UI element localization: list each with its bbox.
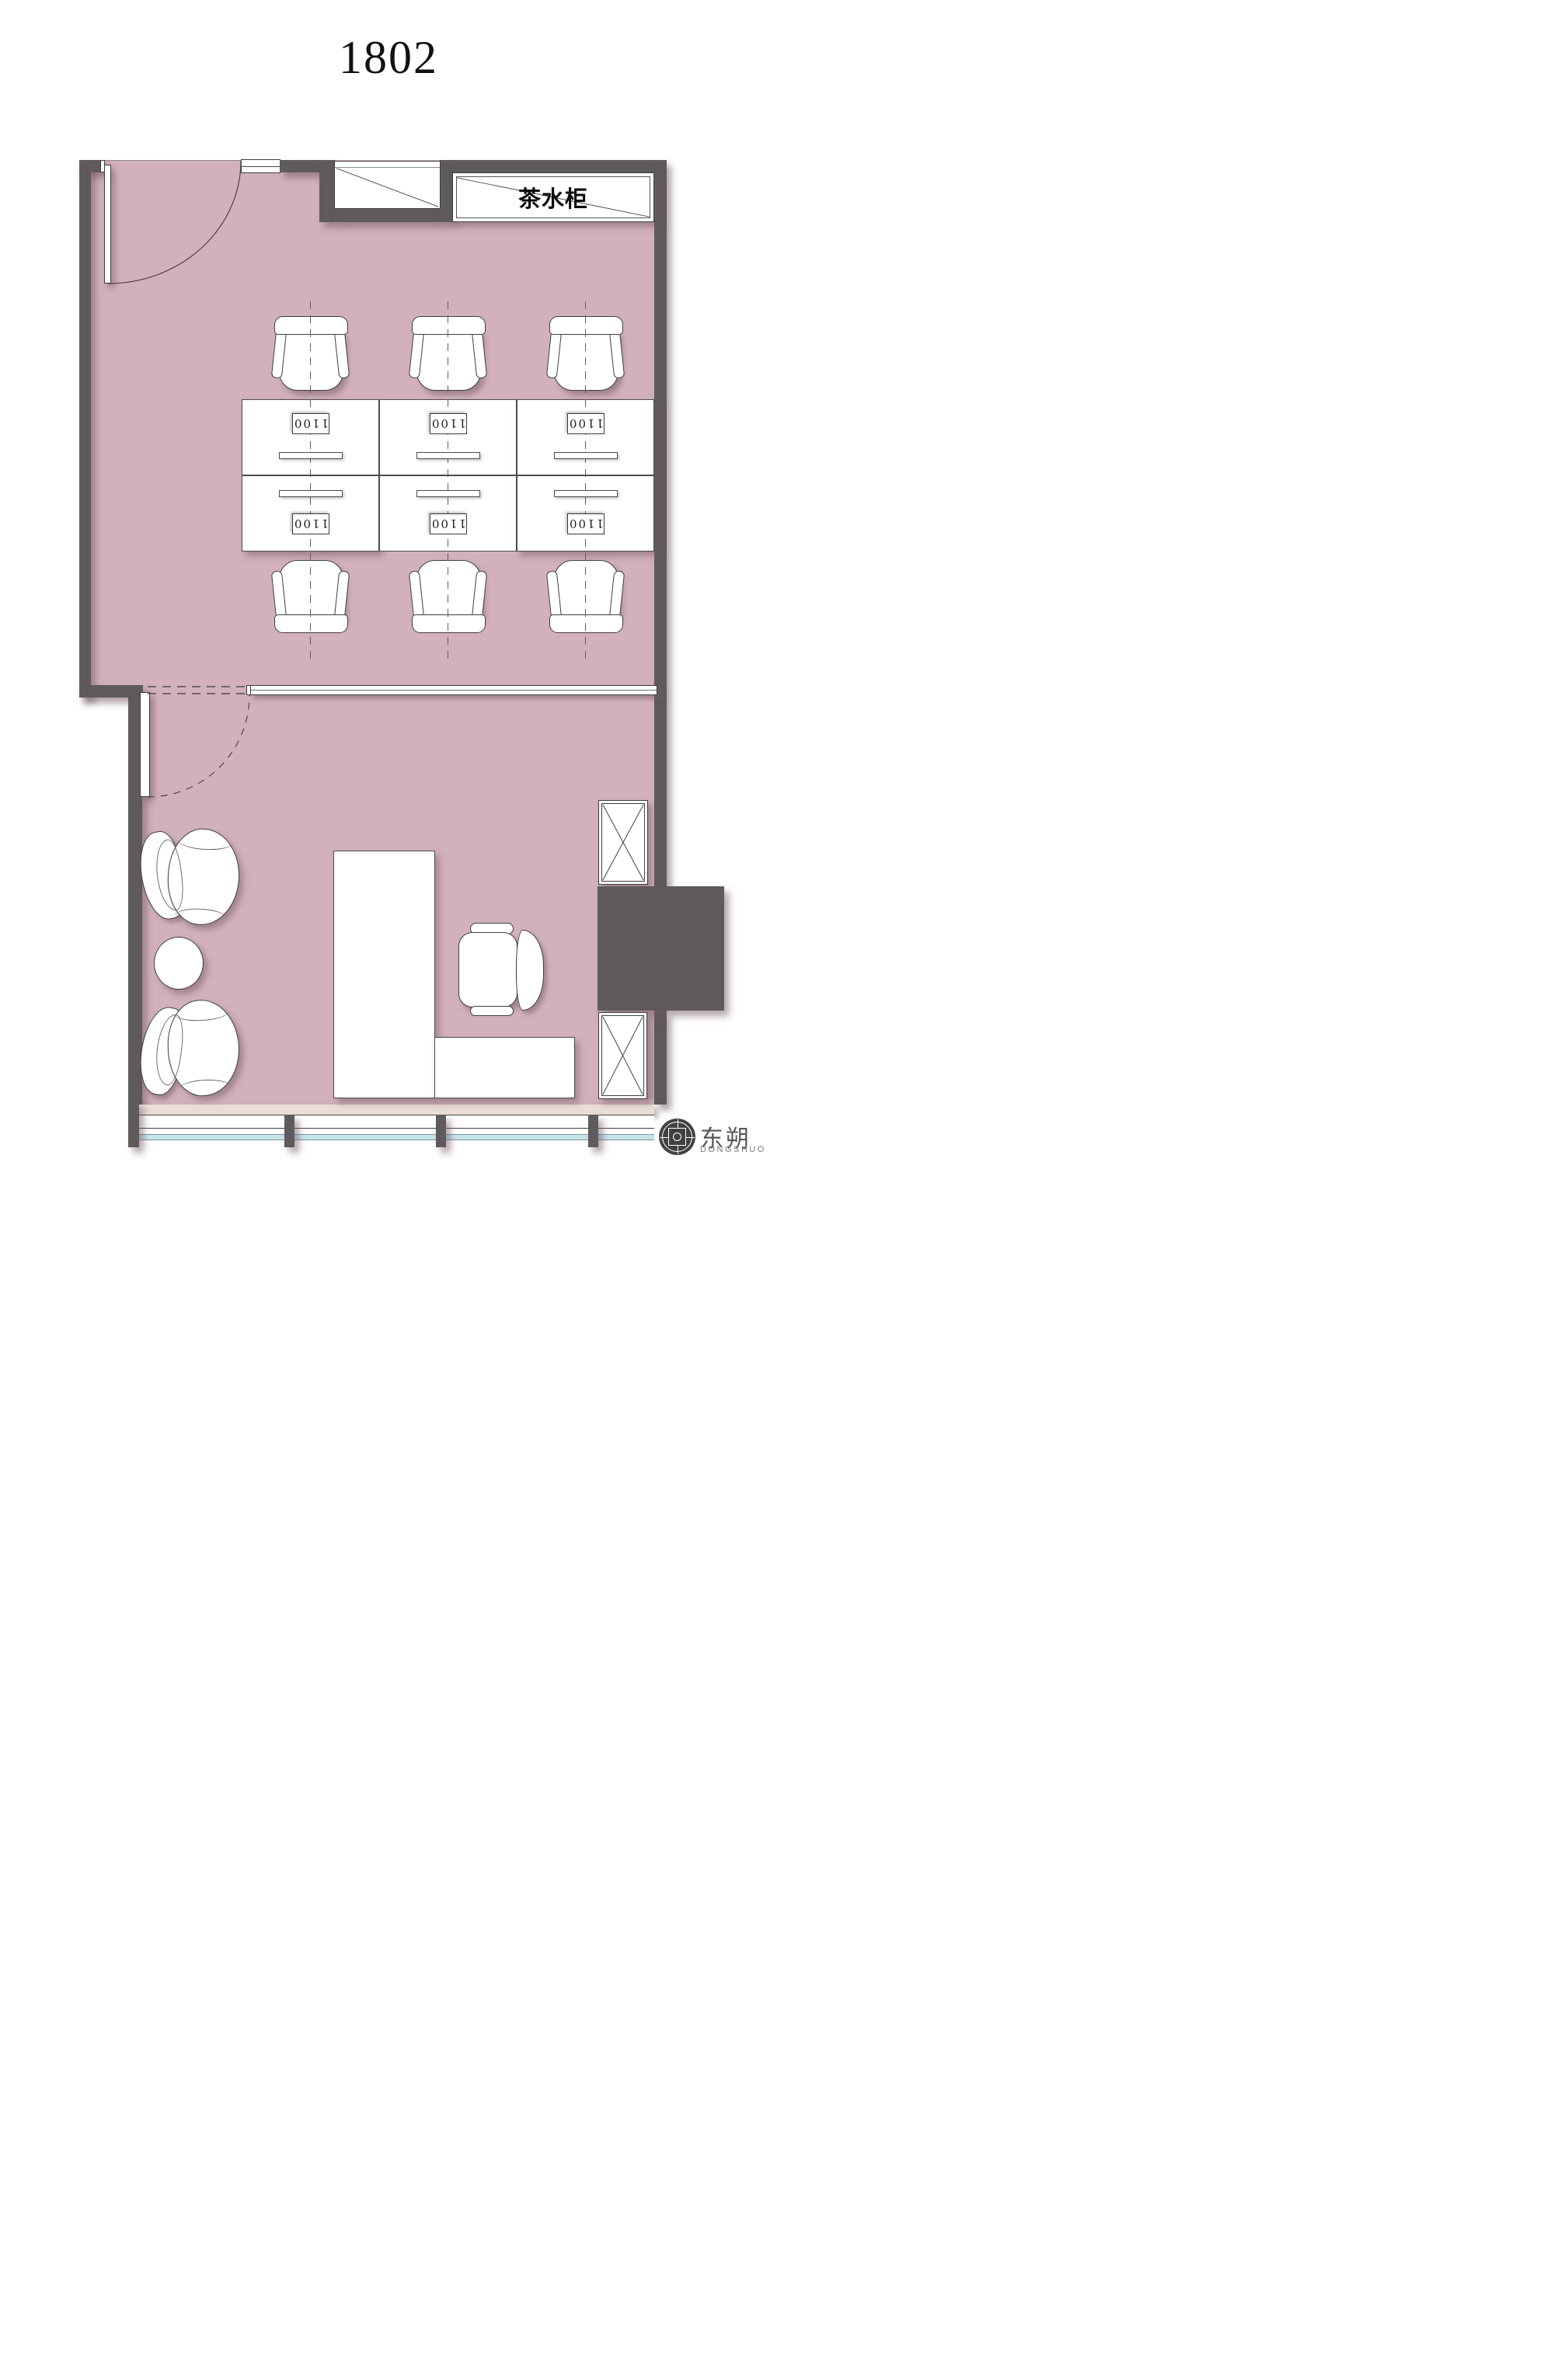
wall-below-niche — [334, 208, 441, 222]
desk-drawer — [416, 490, 480, 497]
coffee-table — [154, 937, 204, 990]
chair-seat — [416, 329, 481, 391]
executive-chair-backrest — [516, 930, 544, 1011]
desk-cell — [517, 399, 654, 475]
unit-title: 1802 — [0, 31, 777, 85]
partition-door-leaf — [140, 692, 150, 797]
wall-right-upper — [654, 160, 667, 886]
desk-drawer — [554, 452, 618, 459]
lounge-chair — [139, 998, 240, 1101]
task-chair — [411, 316, 485, 393]
top-wall-window — [241, 159, 280, 173]
desk-size-label: 1100 — [292, 513, 329, 534]
window-mullion — [588, 1115, 598, 1147]
window-glazing — [132, 1134, 654, 1140]
service-block — [598, 886, 724, 1011]
desk-cell — [242, 399, 379, 475]
executive-chair-footbar — [470, 1006, 514, 1016]
executive-chair — [458, 923, 545, 1018]
wall-left-upper — [79, 160, 91, 698]
curtain-wall-window — [132, 1115, 654, 1143]
tea-water-cabinet: 茶水柜 — [452, 172, 654, 222]
executive-desk-main — [333, 851, 435, 1098]
chair-backrest — [412, 614, 486, 633]
desk-size-label: 1100 — [567, 513, 605, 534]
desk-size-label: 1100 — [430, 413, 467, 434]
task-chair — [274, 556, 347, 633]
partition-glass-line — [251, 690, 657, 691]
task-chair — [549, 316, 622, 393]
cabinet-diagonal-line — [336, 169, 438, 207]
entry-door-leaf — [104, 165, 111, 284]
chair-backrest — [549, 316, 623, 335]
desk-drawer — [279, 452, 343, 459]
shaft-box-crossed — [598, 800, 648, 885]
task-chair — [411, 556, 485, 633]
logo-mark-icon — [659, 1119, 695, 1155]
wall-top-right — [452, 160, 656, 172]
wall-left-jog — [79, 685, 143, 698]
desk-drawer — [416, 452, 480, 459]
chair-backrest — [274, 614, 348, 633]
window-sill-line — [242, 166, 280, 167]
executive-desk-return — [434, 1037, 575, 1098]
storage-cabinet — [334, 161, 441, 209]
logo-subtitle: DONGSHUO — [700, 1145, 766, 1154]
window-mullion — [128, 1101, 139, 1147]
glass-partition — [250, 685, 657, 695]
window-frame-line — [132, 1128, 654, 1129]
tea-cabinet-label: 茶水柜 — [518, 181, 588, 214]
chair-backrest — [549, 614, 623, 633]
executive-chair-seat — [458, 932, 517, 1007]
desk-cell — [379, 399, 517, 475]
wall-right-lower — [654, 1011, 667, 1105]
desk-size-label: 1100 — [567, 413, 605, 434]
chair-backrest — [412, 316, 486, 335]
floor-ledge — [132, 1105, 654, 1115]
wall-accent-strip — [647, 1012, 654, 1099]
desk-size-label: 1100 — [292, 413, 329, 434]
entry-threshold-line — [104, 160, 241, 161]
chair-backrest — [274, 316, 348, 335]
desk-drawer — [554, 490, 618, 497]
wall-stub-down — [319, 160, 335, 222]
chair-seat — [279, 329, 343, 391]
task-chair — [549, 556, 622, 633]
window-mullion — [284, 1115, 294, 1147]
partition-door-jamb — [246, 685, 251, 695]
task-chair — [274, 316, 347, 393]
window-mullion — [436, 1115, 446, 1147]
chair-seat — [554, 329, 618, 391]
logo-dot — [673, 1133, 681, 1141]
shaft-box-crossed — [598, 1012, 647, 1099]
desk-drawer — [279, 490, 343, 497]
lounge-chair — [139, 826, 240, 928]
desk-size-label: 1100 — [430, 513, 467, 534]
floor-plan-canvas: 1802 茶水柜 — [0, 0, 777, 1190]
